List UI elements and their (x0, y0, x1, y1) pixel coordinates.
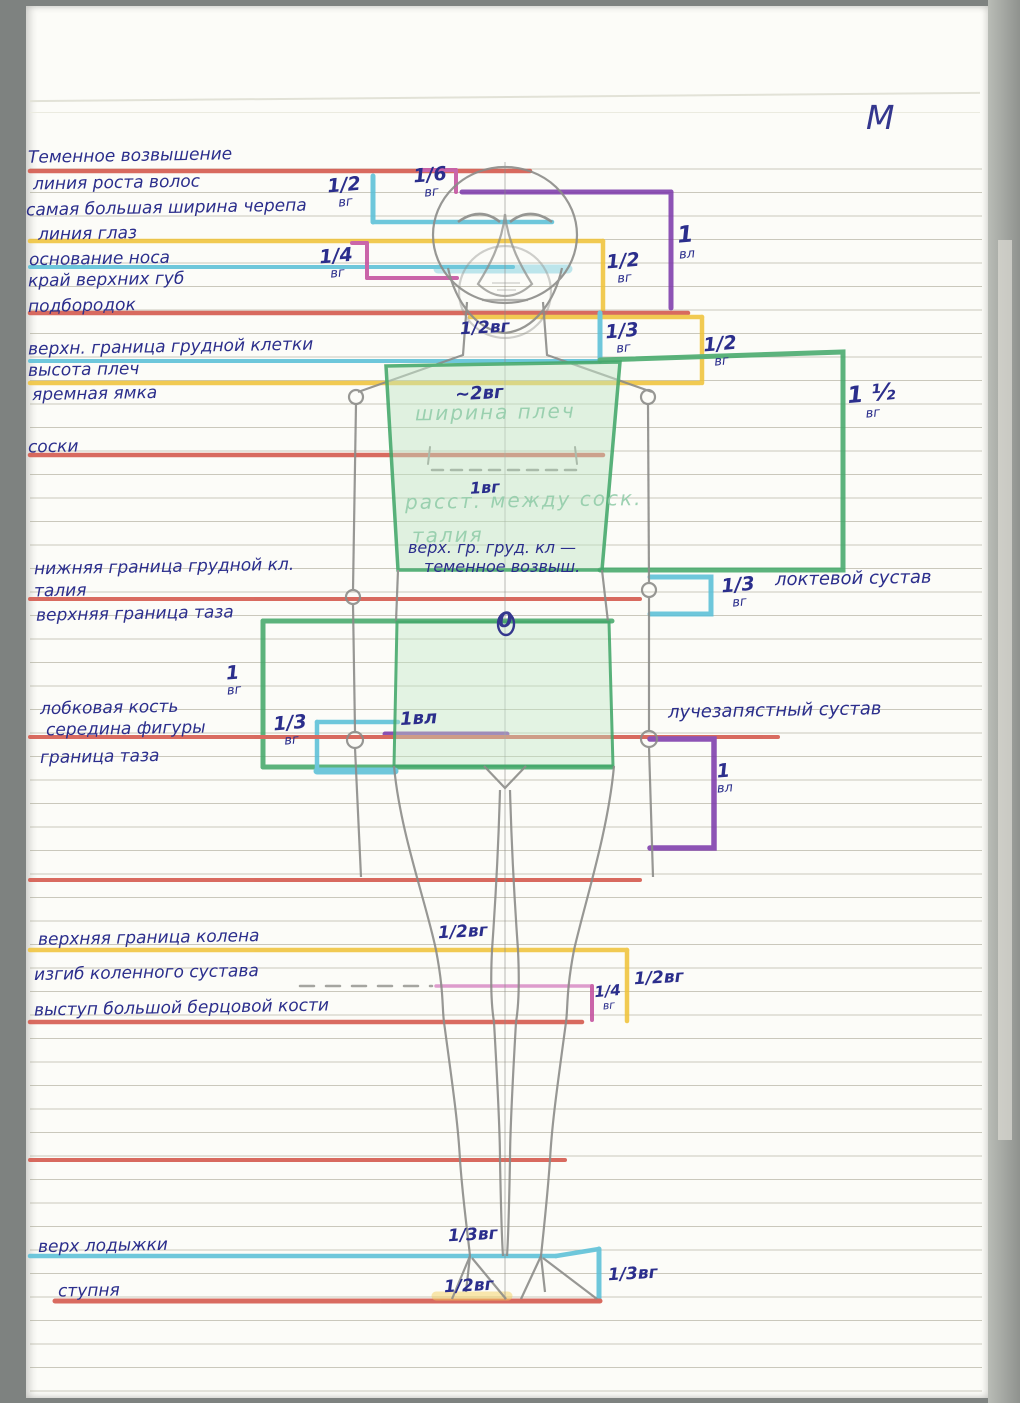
label-pubic-bone: лобковая кость (40, 697, 179, 719)
measure-knee-top: 1/2вг (438, 921, 488, 944)
label-chin: подбородок (28, 295, 136, 317)
measure-value: 1/3 (721, 575, 756, 597)
pelvis-shape (394, 622, 613, 766)
label-knee-bend: изгиб коленного сустава (34, 961, 259, 985)
measure-unit: вг (226, 683, 242, 697)
shoulder-joint-right (641, 390, 655, 404)
waist-side-left (396, 570, 398, 622)
shoulder-width-text: ширина плеч (415, 399, 576, 426)
measure-value: 1 (225, 663, 241, 683)
measure-ankle-foot: 1/3вг (608, 1263, 658, 1286)
measure-chin-shoulder: 1/2 вг (703, 334, 739, 370)
measure-hairline-chin: 1 вл (676, 223, 695, 261)
label-wrist-joint: лучезапястный сустав (668, 698, 882, 723)
measure-value: 1/4 (594, 983, 622, 1000)
label-pelvis-top: верхняя граница таза (36, 602, 234, 625)
label-ankle-top: верх лодыжки (38, 1235, 168, 1257)
measure-value: 1/6 (413, 165, 448, 187)
measure-eyes-lip: 1/4 вг (319, 246, 355, 282)
zero-mark: 0 (498, 608, 513, 632)
measure-ankle-top: 1/3вг (448, 1224, 498, 1247)
label-hairline: линия роста волос (33, 172, 200, 195)
measure-foot-span: 1/2вг (444, 1275, 494, 1298)
measure-crown-skull: 1/2 вг (327, 175, 363, 211)
measure-pubis-pelvis: 1/3 вг (273, 713, 309, 749)
waist-side-right (602, 570, 608, 622)
label-upper-lip: край верхних губ (28, 269, 185, 292)
measure-eyes-chin: 1/2 вг (606, 251, 642, 287)
bracket-wrist (650, 739, 714, 848)
label-elbow-joint: локтевой сустав (775, 567, 932, 591)
upper-arm-right (648, 404, 649, 583)
measure-head-half: 1/2вг (460, 317, 510, 340)
line-ankle-rise (556, 1249, 599, 1256)
nipple-distance-text: расст. между соск. (405, 486, 643, 514)
label-nipples: соски (28, 437, 79, 458)
measure-value: 1 (676, 223, 694, 247)
label-mid-figure: середина фигуры (46, 718, 206, 741)
label-crown: Теменное возвышение (28, 144, 232, 168)
leg-outer-left (394, 766, 470, 1292)
note-line-1: верх. гр. груд. кл — (408, 538, 576, 557)
measure-value: 1/2 (606, 251, 641, 273)
note-line-2: теменное возвыш. (424, 557, 580, 576)
measure-knee-span: 1/2вг (634, 967, 684, 990)
label-foot: ступня (58, 1280, 120, 1301)
label-waist: талия (34, 581, 87, 602)
measure-unit: вг (595, 999, 622, 1012)
label-pelvis-bottom: граница таза (40, 746, 160, 768)
label-eye-line: линия глаз (38, 223, 137, 245)
scanned-proportion-sheet: Теменное возвышение линия роста волос са… (0, 0, 1020, 1403)
label-nose-base: основание носа (29, 248, 170, 270)
shoulder-joint-left (349, 390, 363, 404)
hand-right (649, 747, 653, 877)
measure-wrist-hand: 1 вл (715, 761, 734, 795)
upper-arm-left (353, 404, 356, 590)
measure-value: 1 (715, 761, 733, 781)
corner-mark: М (866, 98, 894, 137)
wrist-joint-left (347, 732, 363, 748)
bracket-elbow (650, 577, 711, 614)
elbow-joint-right (642, 583, 656, 597)
measure-value: 1/4 (319, 246, 354, 268)
label-knee-top: верхняя граница колена (38, 926, 260, 950)
leg-outer-right (541, 766, 614, 1292)
measure-value: 1/2 (327, 175, 362, 197)
measure-shoulder-chest: 1 ½ вг (846, 381, 897, 422)
measure-knee-quarter: 1/4 вг (594, 983, 623, 1012)
label-shoulder-height: высота плеч (28, 359, 140, 381)
measure-chin-chest: 1/3 вг (605, 321, 641, 357)
measure-value: 1/3 (273, 713, 308, 735)
measure-value: 1/2 (703, 334, 738, 356)
measure-value: 1 ½ (846, 381, 896, 408)
foot-right (521, 1256, 597, 1299)
measure-unit: вл (679, 247, 696, 261)
label-jugular-notch: яремная ямка (32, 383, 158, 405)
measure-unit: вл (716, 781, 733, 795)
measure-pelvis-height: 1 вг (225, 663, 242, 697)
measure-value: 1/3 (605, 321, 640, 343)
measure-crown-hairline: 1/6 вг (413, 165, 449, 201)
measure-elbow: 1/3 вг (721, 575, 757, 611)
measure-hand-length: 1вл (399, 707, 437, 730)
